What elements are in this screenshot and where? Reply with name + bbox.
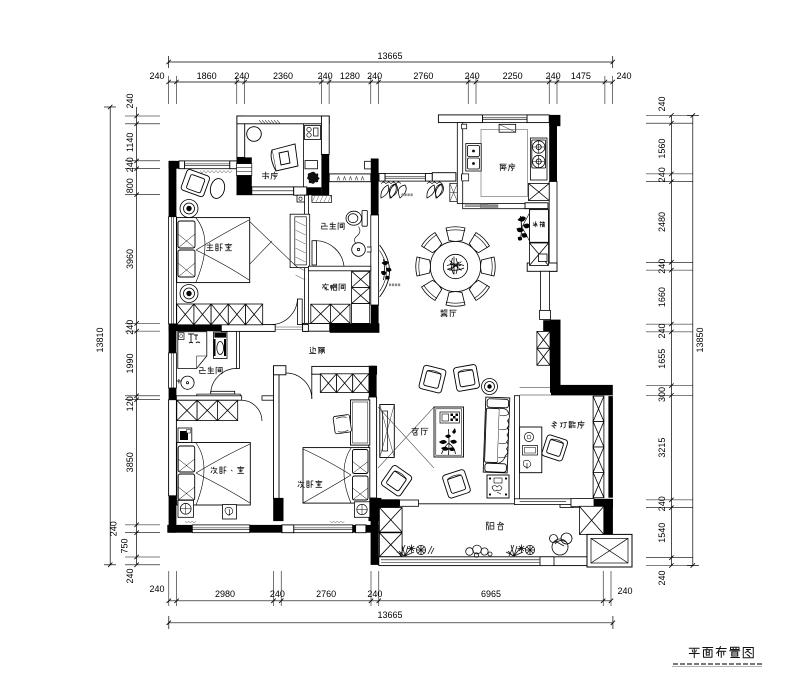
- svg-text:13665: 13665: [377, 610, 402, 620]
- svg-text:2480: 2480: [657, 212, 667, 232]
- svg-text:240: 240: [657, 167, 667, 182]
- svg-text:2980: 2980: [215, 589, 235, 599]
- svg-text:1990: 1990: [125, 353, 135, 373]
- svg-text:3215: 3215: [657, 438, 667, 458]
- svg-text:120: 120: [125, 396, 135, 411]
- svg-text:800: 800: [125, 178, 135, 193]
- svg-text:3850: 3850: [125, 452, 135, 472]
- svg-text:240: 240: [657, 570, 667, 585]
- svg-text:240: 240: [367, 71, 382, 81]
- svg-text:3960: 3960: [125, 249, 135, 269]
- svg-text:1860: 1860: [197, 71, 217, 81]
- svg-text:1560: 1560: [657, 139, 667, 159]
- svg-text:240: 240: [125, 320, 135, 335]
- svg-text:240: 240: [270, 589, 285, 599]
- svg-text:2250: 2250: [503, 71, 523, 81]
- svg-text:240: 240: [657, 496, 667, 511]
- svg-text:1475: 1475: [571, 71, 591, 81]
- svg-text:13850: 13850: [695, 327, 705, 352]
- svg-text:240: 240: [617, 586, 632, 596]
- svg-text:240: 240: [465, 71, 480, 81]
- svg-text:240: 240: [109, 521, 119, 536]
- svg-text:240: 240: [616, 71, 631, 81]
- svg-text:2760: 2760: [316, 589, 336, 599]
- svg-text:240: 240: [125, 93, 135, 108]
- svg-text:240: 240: [657, 96, 667, 111]
- svg-text:2760: 2760: [413, 71, 433, 81]
- svg-text:1655: 1655: [657, 349, 667, 369]
- svg-text:750: 750: [120, 538, 130, 553]
- svg-text:1280: 1280: [340, 71, 360, 81]
- svg-text:240: 240: [546, 71, 561, 81]
- svg-text:240: 240: [125, 157, 135, 172]
- svg-text:240: 240: [125, 568, 135, 583]
- svg-text:1140: 1140: [125, 133, 135, 152]
- svg-text:6965: 6965: [481, 589, 501, 599]
- svg-text:13810: 13810: [95, 327, 105, 352]
- svg-text:2360: 2360: [273, 71, 293, 81]
- svg-text:300: 300: [657, 387, 667, 402]
- svg-text:240: 240: [657, 259, 667, 274]
- svg-text:240: 240: [149, 71, 164, 81]
- svg-text:240: 240: [657, 323, 667, 338]
- svg-text:240: 240: [318, 71, 333, 81]
- svg-text:240: 240: [367, 589, 382, 599]
- svg-text:240: 240: [149, 584, 164, 594]
- svg-text:13665: 13665: [377, 51, 402, 61]
- svg-text:240: 240: [234, 71, 249, 81]
- svg-text:1660: 1660: [657, 287, 667, 307]
- svg-text:1540: 1540: [657, 523, 667, 543]
